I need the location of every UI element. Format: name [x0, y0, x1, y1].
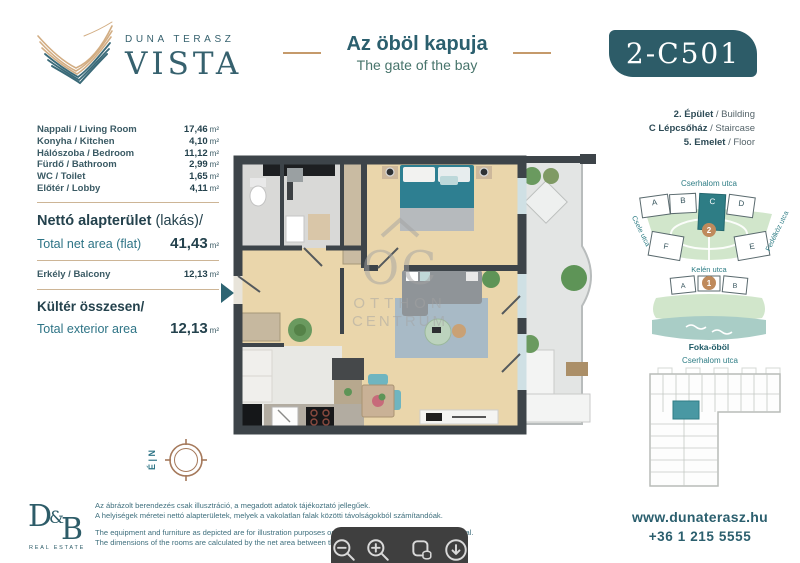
street-left-label: Csele utca	[630, 215, 651, 248]
phone-number: +36 1 215 5555	[610, 529, 790, 544]
panel-divider	[37, 289, 219, 290]
brochure-page: DUNA TERASZ VISTA Az öböl kapuja The gat…	[0, 0, 800, 563]
floor-line: 5. Emelet / Floor	[545, 136, 755, 150]
svg-text:OTTHON: OTTHON	[353, 295, 446, 312]
floor-plan: OC OTTHON CENTRUM	[230, 138, 612, 444]
title-rule-left	[283, 52, 321, 54]
zoom-out-icon	[331, 537, 357, 563]
copy-image-button[interactable]	[407, 535, 437, 563]
panel-divider	[37, 260, 219, 261]
brand-logo: DUNA TERASZ VISTA	[32, 20, 242, 88]
brand-wave-icon	[32, 20, 116, 88]
svg-text:C: C	[709, 197, 715, 206]
zoom-in-icon	[365, 537, 391, 563]
block-F: F	[648, 231, 684, 260]
svg-text:OC: OC	[362, 241, 439, 295]
brand-name-main: VISTA	[125, 46, 242, 82]
compass-label: É | N	[147, 450, 157, 470]
brand-name: DUNA TERASZ VISTA	[125, 20, 242, 88]
copy-image-icon	[409, 537, 435, 563]
hall-closet	[242, 313, 280, 341]
block-D: D	[727, 194, 756, 217]
room-row: Fürdő / Bathroom 2,99m²	[37, 159, 219, 171]
website-link[interactable]: www.dunaterasz.hu	[610, 509, 790, 525]
compass-icon: É | N	[140, 430, 214, 494]
building1-block-B: B	[722, 276, 748, 294]
room-row: WC / Toilet 1,65m²	[37, 171, 219, 183]
net-area-title: Nettó alapterület (lakás)/	[37, 213, 219, 229]
room-row: Nappali / Living Room 17,46m²	[37, 124, 219, 136]
highlighted-unit	[673, 401, 699, 419]
staircase-line: C Lépcsőház / Staircase	[545, 122, 755, 136]
street-middle-label: Kelén utca	[691, 265, 727, 274]
room-row: Hálószoba / Bedroom 11,12m²	[37, 148, 219, 160]
panel-divider	[37, 202, 219, 203]
building-outline	[650, 368, 780, 486]
exterior-title: Kültér összesen/	[37, 299, 219, 314]
balcony-row: Erkély / Balcony 12,13m²	[37, 269, 219, 281]
svg-text:1: 1	[707, 279, 712, 288]
bay-water	[652, 316, 766, 340]
download-button[interactable]	[441, 535, 471, 563]
title-hungarian: Az öböl kapuja	[330, 33, 504, 56]
unit-code-badge: 2-C501	[609, 30, 757, 77]
zoom-out-button[interactable]	[329, 535, 359, 563]
floor-mini-map: Cserhalom utca	[630, 354, 790, 496]
contact-block: www.dunaterasz.hu +36 1 215 5555	[610, 509, 790, 544]
block-A: A	[640, 194, 671, 218]
room-row: Előtér / Lobby 4,11m²	[37, 183, 219, 195]
bed	[400, 165, 474, 231]
net-area-row: Total net area (flat) 41,43m²	[37, 235, 219, 252]
tv-console	[420, 410, 498, 424]
svg-text:CENTRUM: CENTRUM	[352, 313, 448, 330]
svg-text:2: 2	[707, 226, 712, 235]
bay-label: Foka-öböl	[689, 342, 730, 352]
realtor-tagline: REAL ESTATE	[29, 545, 85, 551]
site-map: Cserhalom utca A B C D 2 F	[628, 174, 790, 354]
download-icon	[443, 537, 469, 563]
realtor-logo: D & B REAL ESTATE	[28, 499, 100, 557]
plant	[482, 270, 500, 288]
room-area-panel: Nappali / Living Room 17,46m² Konyha / K…	[37, 124, 219, 345]
building1-block-A: A	[670, 276, 696, 294]
block-E: E	[734, 231, 770, 260]
title-english: The gate of the bay	[330, 57, 504, 73]
room-row: Konyha / Kitchen 4,10m²	[37, 136, 219, 148]
minimap-street-label: Cserhalom utca	[682, 356, 739, 365]
svg-text:B: B	[680, 196, 686, 205]
brand-name-top: DUNA TERASZ	[125, 34, 242, 45]
image-viewer-toolbar	[331, 527, 468, 563]
plant	[288, 318, 312, 342]
building-info: 2. Épület / Building C Lépcsőház / Stair…	[545, 108, 755, 150]
toilet	[250, 178, 266, 206]
project-title: Az öböl kapuja The gate of the bay	[283, 33, 551, 73]
zoom-in-button[interactable]	[363, 535, 393, 563]
title-rule-right	[513, 52, 551, 54]
building-line: 2. Épület / Building	[545, 108, 755, 122]
street-top-label: Cserhalom utca	[681, 179, 738, 188]
block-B: B	[670, 193, 697, 213]
exterior-row: Total exterior area 12,13m²	[37, 320, 219, 337]
